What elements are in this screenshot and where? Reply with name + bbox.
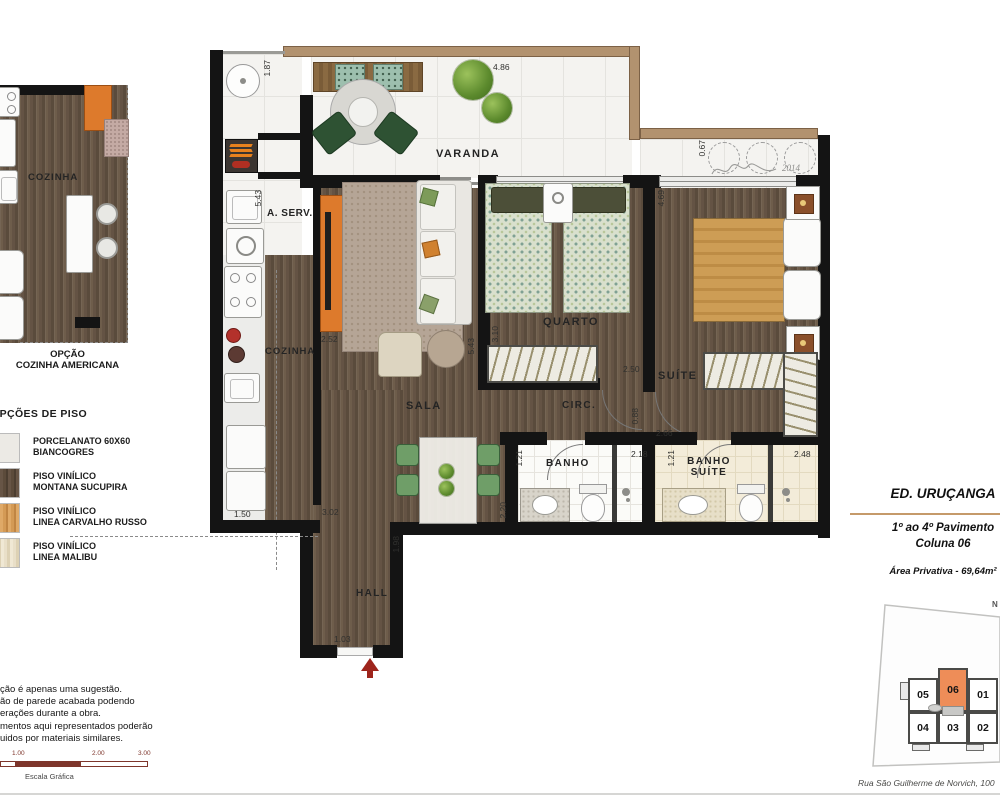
dimension-label: 2.66	[656, 428, 673, 438]
room-label-banho: BANHO	[546, 458, 590, 469]
floors-text: 1º ao 4º Pavimento	[868, 522, 1000, 534]
inset-wall-stub	[75, 317, 100, 328]
legend-item-line1: PISO VINÍLICO	[33, 506, 147, 517]
banho-suite-toilet-tank	[737, 484, 765, 494]
legend-item-line1: PORCELANATO 60X60	[33, 436, 130, 447]
inset-sofa-2	[0, 296, 24, 340]
dimension-label: 2.50	[623, 364, 640, 374]
legend-item-line1: PISO VINÍLICO	[33, 471, 128, 482]
wall-quarto-suite	[643, 175, 655, 392]
keyplan-unit-04: 04	[908, 712, 938, 744]
legend-item: PISO VINÍLICO MONTANA SUCUPIRA	[33, 471, 128, 493]
scale-bar-filled-segment	[15, 761, 81, 767]
inset-room-label: COZINHA	[28, 172, 78, 183]
swatch-montana-sucupira	[0, 468, 20, 498]
keyplan-unit-03: 03	[938, 712, 968, 744]
wall-hall-bottom-right	[373, 645, 403, 658]
wall-grill-nook-top	[258, 133, 300, 140]
room-label-servico: A. SERV.	[267, 208, 313, 219]
disclaimer-line: ção é apenas uma sugestão.	[0, 684, 180, 696]
legend-item-line2: BIANCOGRES	[33, 447, 130, 458]
inset-caption-line2: COZINHA AMERICANA	[0, 360, 135, 371]
room-label-quarto: QUARTO	[543, 316, 599, 328]
scale-bar: 1.00 2.00 3.00 Escala Gráfica	[0, 748, 170, 784]
suite-pillow-1	[783, 217, 821, 267]
legend-item-line2: MONTANA SUCUPIRA	[33, 482, 128, 493]
title-block: ED. URUÇANGA 1º ao 4º Pavimento Coluna 0…	[868, 480, 1000, 590]
inset-sink	[0, 170, 18, 204]
room-label-circulacao: CIRC.	[562, 400, 596, 411]
scale-label: 2.00	[92, 750, 105, 757]
banho-shower-head-icon	[622, 488, 630, 496]
building-name: ED. URUÇANGA	[868, 486, 1000, 501]
inset-counter	[0, 119, 16, 167]
dimension-label: 0.88	[630, 408, 640, 425]
dimension-label: 1.87	[262, 60, 272, 77]
inset-dashline-bottom	[20, 342, 128, 343]
unit-number: 01	[977, 689, 989, 701]
inset-sofa-1	[0, 250, 24, 294]
dining-chair-1	[396, 444, 419, 466]
wall-bath-divider	[642, 432, 655, 524]
swatch-porcelanato	[0, 433, 20, 463]
wall-hall-bottom-left	[300, 645, 337, 658]
dimension-label: 4.69	[656, 190, 666, 207]
keyplan-entrance-blob	[928, 704, 942, 712]
room-label-suite: SUÍTE	[658, 370, 697, 382]
keyplan-tab-bottom-2	[966, 744, 984, 751]
dimension-label: 5.43	[253, 190, 263, 207]
dimension-label: 2.20	[498, 502, 508, 519]
quarto-bed-2-pillow	[569, 187, 626, 213]
disclaimer-line: mentos aqui representados poderão	[0, 721, 180, 733]
street-address: Rua São Guilherme de Norvich, 100	[858, 778, 1000, 788]
room-label-banho-suite-line1: BANHO	[678, 456, 740, 467]
grill-icon	[225, 139, 258, 173]
service-sink-drain	[240, 78, 246, 84]
north-indicator: N	[992, 600, 998, 609]
inset-island-counter	[66, 195, 93, 273]
dimension-label: 2.52	[321, 334, 338, 344]
dimension-label: 1.21	[666, 450, 676, 467]
varanda-parapet-top	[283, 46, 640, 57]
tv-screen	[325, 212, 331, 310]
wall-service-varanda	[300, 95, 313, 188]
wall-left	[210, 50, 223, 533]
varanda-plant-2	[482, 93, 512, 123]
column-text: Coluna 06	[868, 538, 1000, 550]
banho-suite-shower-partition	[768, 445, 773, 524]
dimension-label: 4.86	[493, 62, 510, 72]
service-edge-line	[222, 51, 285, 54]
quarto-nightstand	[543, 183, 573, 223]
legend-item: PISO VINÍLICO LINEA MALIBU	[33, 541, 97, 563]
unit-number: 06	[947, 684, 959, 696]
unit-number: 03	[947, 722, 959, 734]
scale-caption: Escala Gráfica	[25, 772, 74, 781]
banho-suite-basin	[678, 495, 708, 515]
dimension-label: 1.98	[391, 536, 401, 553]
key-plan: N 05 06 01 04 03 02	[858, 596, 1000, 774]
wall-bath-top-2	[585, 432, 697, 445]
legend-item-line2: LINEA CARVALHO RUSSO	[33, 517, 147, 528]
floor-options-legend: OPÇÕES DE PISO PORCELANATO 60X60 BIANCOG…	[0, 400, 180, 580]
dining-chair-2	[396, 474, 419, 496]
sofa	[416, 180, 472, 325]
dimension-label: 1.50	[234, 509, 251, 519]
disclaimer-line: ão de parede acabada podendo	[0, 696, 180, 708]
wall-hall-left	[300, 520, 313, 658]
dimension-label: 3.02	[322, 507, 339, 517]
swatch-linea-malibu	[0, 538, 20, 568]
legend-item: PISO VINÍLICO LINEA CARVALHO RUSSO	[33, 506, 147, 528]
page-bottom-rule	[0, 793, 1000, 795]
scale-label: 3.00	[138, 750, 151, 757]
keyplan-core-stub	[942, 706, 964, 716]
suite-wardrobe-vertical	[783, 352, 818, 437]
banho-suite-shower-head-icon	[782, 488, 790, 496]
kitchen-pot-2	[228, 346, 245, 363]
kitchen-option-inset: COZINHA OPÇÃO COZINHA AMERICANA	[0, 85, 140, 385]
main-floor-plan: 2014	[210, 40, 838, 685]
swatch-carvalho-russo	[0, 503, 20, 533]
room-label-varanda: VARANDA	[436, 148, 500, 160]
dimension-label: 1.21	[514, 450, 524, 467]
dining-chair-4	[477, 474, 500, 496]
scale-bar-track	[0, 761, 148, 767]
disclaimer-text: ção é apenas uma sugestão. ão de parede …	[0, 684, 180, 745]
fridge-top	[226, 425, 266, 469]
side-table	[427, 330, 465, 368]
dining-chair-3	[477, 444, 500, 466]
quarto-bed-1-pillow	[491, 187, 548, 213]
inset-caption-line1: OPÇÃO	[0, 349, 135, 360]
inset-caption: OPÇÃO COZINHA AMERICANA	[0, 349, 135, 371]
keyplan-unit-02: 02	[968, 712, 998, 744]
legend-item-line2: LINEA MALIBU	[33, 552, 97, 563]
dining-plant-2	[439, 481, 454, 496]
entrance-door-leaf	[337, 647, 373, 656]
kitchen-pot-1	[226, 328, 241, 343]
room-label-hall: HALL	[356, 588, 388, 599]
banho-shower-partition	[612, 445, 617, 524]
legend-item-line1: PISO VINÍLICO	[33, 541, 97, 552]
kitchen-sink	[224, 373, 260, 403]
legend-title: OPÇÕES DE PISO	[0, 408, 87, 420]
inset-stool-1	[96, 203, 118, 225]
wall-grill-nook-bottom	[258, 172, 300, 179]
suite-window	[659, 176, 798, 187]
inset-stove	[0, 87, 20, 117]
kitchen-floor	[265, 255, 313, 521]
inset-mosaic-rug	[104, 119, 129, 157]
banho-basin	[532, 495, 558, 515]
washing-machine	[226, 228, 264, 264]
dimension-label: 3.10	[490, 326, 500, 343]
dimension-label: 0.67	[697, 140, 707, 157]
quarto-wardrobe	[487, 345, 598, 383]
entrance-arrow-stem	[367, 670, 373, 678]
room-label-sala: SALA	[406, 400, 442, 412]
suite-pillow-2	[783, 270, 821, 320]
suite-bed	[693, 218, 785, 322]
varanda-table-top	[348, 97, 378, 127]
stove	[224, 266, 262, 318]
banho-toilet-tank	[579, 484, 607, 494]
suite-nightstand-1	[786, 186, 820, 220]
dining-plant-1	[439, 464, 454, 479]
dimension-label: 2.48	[794, 449, 811, 459]
dimension-label: 5.43	[466, 338, 476, 355]
room-label-banho-suite-line2: SUÍTE	[678, 467, 740, 478]
scale-label: 1.00	[12, 750, 25, 757]
fridge-bottom	[226, 471, 266, 511]
varanda-parapet-step	[629, 46, 640, 140]
disclaimer-line: erações durante a obra.	[0, 708, 180, 720]
title-divider-line	[850, 513, 1000, 515]
banho-toilet	[581, 494, 605, 522]
unit-number: 04	[917, 722, 929, 734]
varanda-parapet-band	[640, 128, 818, 139]
keyplan-unit-01: 01	[968, 678, 998, 712]
room-label-cozinha: COZINHA	[265, 346, 315, 357]
keyplan-tab-bottom-1	[912, 744, 930, 751]
banho-suite-toilet	[739, 494, 763, 522]
unit-number: 05	[917, 689, 929, 701]
dimension-label: 2.18	[631, 449, 648, 459]
armchair	[378, 332, 422, 377]
inset-stool-2	[96, 237, 118, 259]
legend-item: PORCELANATO 60X60 BIANCOGRES	[33, 436, 130, 458]
private-area-text: Área Privativa - 69,64m²	[868, 566, 1000, 577]
signature-year: 2014	[782, 163, 800, 173]
room-label-banho-suite: BANHO SUÍTE	[678, 456, 740, 478]
dimension-label: 1.03	[334, 634, 351, 644]
unit-number: 02	[977, 722, 989, 734]
varanda-plant-1	[453, 60, 493, 100]
disclaimer-line: uidos por materiais similares.	[0, 733, 180, 745]
floor-plan-page: 2014	[0, 0, 1000, 800]
